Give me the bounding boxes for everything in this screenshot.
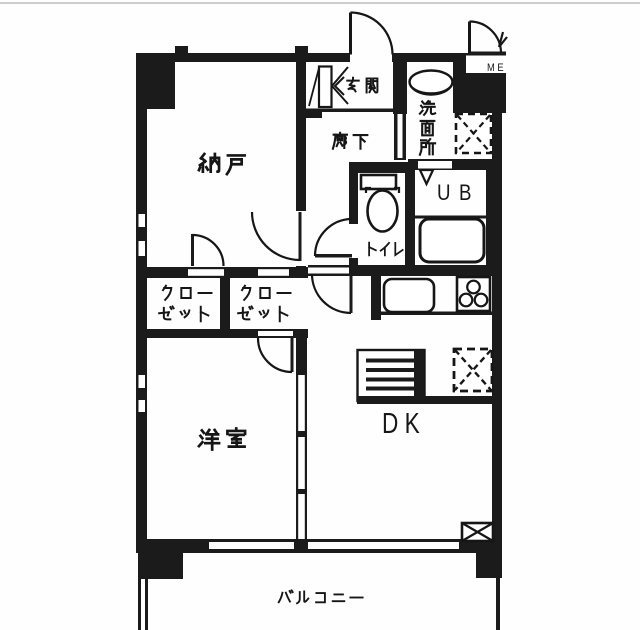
svg-text:DK: DK: [382, 406, 426, 439]
svg-text:UB: UB: [437, 182, 480, 206]
svg-text:ME: ME: [487, 62, 506, 74]
